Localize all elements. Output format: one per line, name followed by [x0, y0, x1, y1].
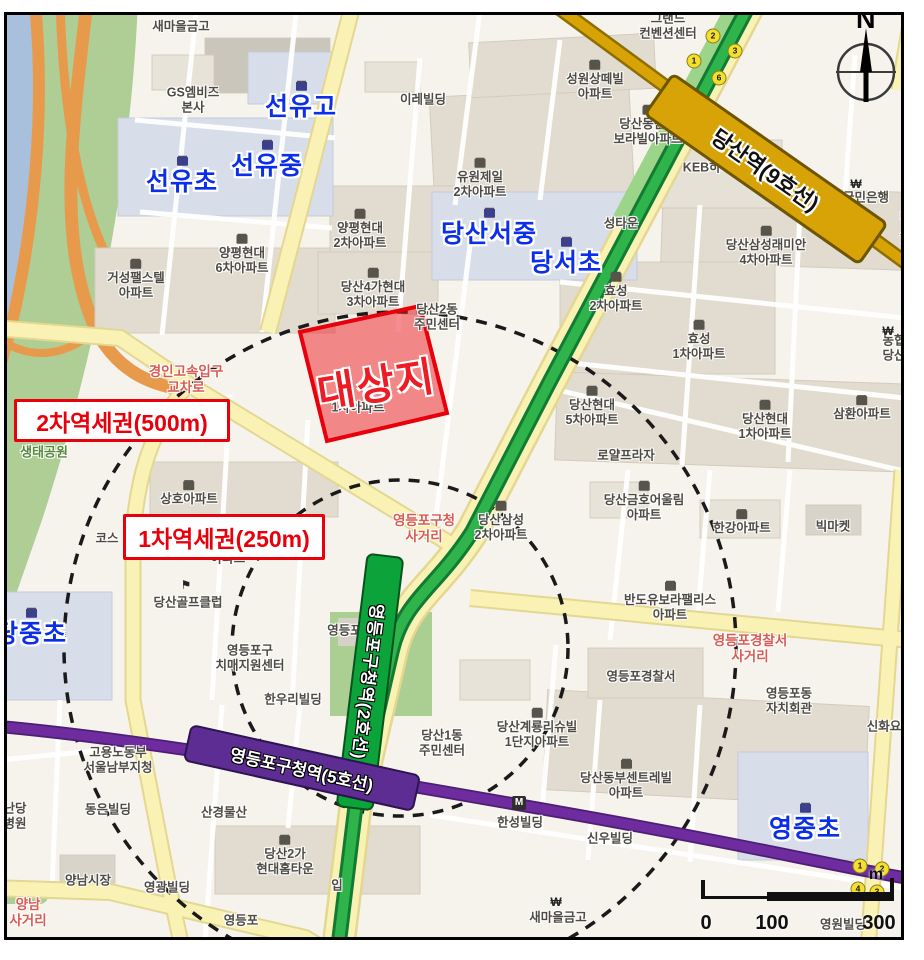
- label-hospital-partial: 난당 병원: [4, 801, 27, 831]
- label-gs-mbiz: GS엠비즈 본사: [167, 85, 220, 115]
- scale-tick-left: [701, 880, 705, 899]
- label-centreville-apt: 당산동부센트레빌 아파트: [580, 760, 672, 801]
- map-canvas[interactable]: 영등포구청역(2호선) 영등포구청역(5호선) 당산역(9호선) 2차역세권(5…: [4, 12, 904, 940]
- label-ydp-partial: 영등포: [224, 914, 259, 929]
- label-yuwon-jeil-2cha: 유원제일 2차아파트: [454, 159, 507, 200]
- label-seongtaun-partial: 성타운: [604, 217, 639, 232]
- subway-exit-3: 3: [728, 44, 743, 59]
- label-dangsan-kumho: 당산금호어울림 아파트: [604, 482, 685, 523]
- label-sangyeong-mulsan: 산경물산: [201, 806, 247, 821]
- scale-label-300: 300: [862, 912, 895, 935]
- label-gyeongin-expressway-intersection: 경인고속입구 교차로: [149, 364, 224, 396]
- label-samsung-raemian-4cha: 당산삼성래미안 4차아파트: [726, 227, 807, 268]
- label-dangsan-partial: 당산: [897, 211, 904, 243]
- compass-rose: N: [832, 12, 904, 110]
- label-dangsan-seo-middle-school: 당산서중: [441, 209, 537, 250]
- label-dangsan-samsung-2cha: 당산삼성 2차아파트: [475, 502, 528, 543]
- label-samhwan-apt: 삼환아파트: [833, 396, 891, 422]
- label-cosmos-partial: 코스: [95, 532, 118, 547]
- subway-exit-2: 2: [706, 29, 721, 44]
- label-ecology-park: 생태공원: [20, 444, 68, 459]
- scale-bar-thin: [703, 896, 767, 899]
- label-ydp-dong-hall: 영등포동 자치회관: [766, 686, 812, 716]
- label-yangnam-market: 양남시장: [65, 874, 111, 889]
- label-seongwon-santevill: 성원상떼빌 아파트: [566, 61, 624, 102]
- label-saemaul-geumgo-bottom: 새마을금고: [529, 911, 587, 926]
- label-dangsan-2dong-center: 당산2동 주민센터: [414, 302, 460, 332]
- label-ydp-office-intersection: 영등포구청 사거리: [393, 513, 455, 545]
- zone-label-250m: 1차역세권(250m): [123, 514, 325, 560]
- won-bank-icon: ₩: [850, 177, 861, 191]
- scale-unit-label: m: [869, 866, 883, 884]
- label-yangpyeong-hyundai-2cha: 양평현대 2차아파트: [334, 210, 387, 251]
- label-hangang-apt: 한강아파트: [713, 510, 771, 536]
- label-dangjung-elementary: 당중초: [4, 609, 67, 650]
- subway-exit-6: 6: [712, 71, 727, 86]
- label-dangsan4ga-hyundai-3cha: 당산4가현대 3차아파트: [341, 269, 405, 310]
- label-shinwoo-building: 신우빌딩: [587, 832, 633, 847]
- label-seonyu-elementary: 선유초: [146, 157, 218, 198]
- label-royal-plaza: 로얄프라자: [597, 449, 655, 464]
- label-yeongwon-building: 영원빌딩: [820, 918, 866, 933]
- scale-bar-thick: [767, 892, 893, 901]
- label-seonyu-middle-school: 선유중: [231, 141, 303, 182]
- label-gyeryong-richeville: 당산계룡리슈빌 1단지아파트: [497, 709, 578, 750]
- scale-label-100: 100: [755, 912, 788, 935]
- label-hyosung-2cha: 효성 2차아파트: [590, 273, 643, 314]
- subway-exit-1: 1: [687, 54, 702, 69]
- label-dangsan-1dong-center: 당산1동 주민센터: [419, 728, 465, 758]
- label-yangnam-intersection: 양남 사거리: [9, 897, 46, 929]
- map-frame: 영등포구청역(2호선) 영등포구청역(5호선) 당산역(9호선) 2차역세권(5…: [4, 12, 904, 940]
- label-yeonggwang-building: 영광빌딩: [144, 881, 190, 896]
- scale-tick-right: [890, 878, 894, 901]
- label-shinhwa-partial: 신화요: [867, 720, 902, 735]
- map-screenshot: 영등포구청역(2호선) 영등포구청역(5호선) 당산역(9호선) 2차역세권(5…: [0, 0, 924, 960]
- label-yangpyeong-hyundai-6cha: 양평현대 6차아파트: [216, 235, 269, 276]
- label-entrance-partial: 입: [331, 879, 343, 894]
- label-hanwoori-building: 한우리빌딩: [264, 693, 322, 708]
- label-dangsan-hyundai-1cha: 당산현대 1차아파트: [739, 401, 792, 442]
- compass-north-label: N: [856, 12, 876, 35]
- won-bank-icon: ₩: [550, 895, 561, 909]
- label-hyundai-hometown: 당산2가 현대홈타운: [256, 836, 314, 877]
- zone-label-500m: 2차역세권(500m): [14, 399, 230, 442]
- label-big-market: 빅마켓: [816, 520, 851, 535]
- won-bank-icon: ₩: [882, 324, 893, 338]
- label-dementia-center: 영등포구 치매지원센터: [215, 643, 284, 673]
- subway-entrance-icon: M: [512, 796, 526, 810]
- label-police-intersection: 영등포경찰서 사거리: [713, 633, 788, 665]
- label-ire-building: 이레빌딩: [400, 93, 446, 108]
- label-saemaul-geumgo-top: 새마을금고: [152, 20, 210, 35]
- label-grand-convention: 그랜드 컨벤션센터: [639, 12, 697, 41]
- subway-exit-1b: 1: [853, 859, 868, 874]
- label-hanseong-building: 한성빌딩: [497, 816, 543, 831]
- label-dongeun-building: 동은빌딩: [85, 803, 131, 818]
- label-seonyu-high-school: 선유고: [265, 82, 337, 123]
- label-bando-ubora-palace: 반도유보라팰리스 아파트: [624, 582, 716, 623]
- label-labor-ministry: 고용노동부 서울남부지청: [83, 745, 152, 775]
- label-sangho-apt: 상호아파트: [160, 481, 218, 507]
- label-geoseong-apt: 거성팰스텔 아파트: [107, 260, 165, 301]
- label-yeongjung-elementary: 영중초: [769, 804, 841, 845]
- label-dangsan-golf-club: 당산골프클럽: [153, 596, 222, 611]
- label-ydp-police-station: 영등포경찰서: [606, 670, 675, 685]
- label-hyosung-1cha: 효성 1차아파트: [673, 321, 726, 362]
- golf-flag-icon: ⚑: [181, 578, 192, 592]
- label-dangsan-hyundai-5cha: 당산현대 5차아파트: [566, 387, 619, 428]
- scale-label-0: 0: [700, 912, 711, 935]
